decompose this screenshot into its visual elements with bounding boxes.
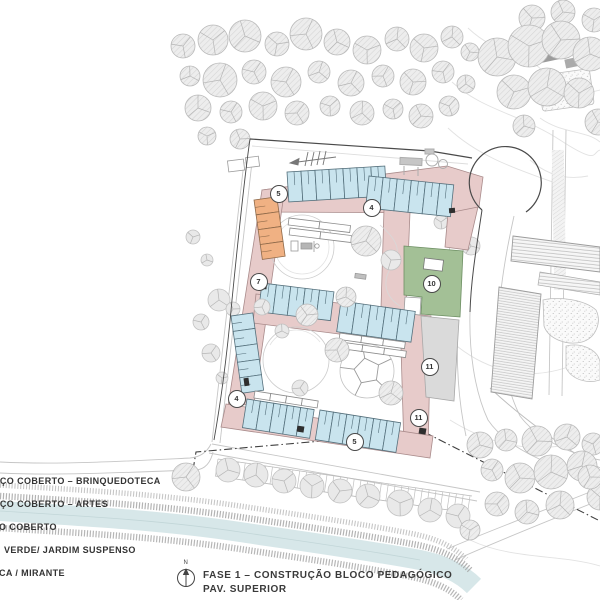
legend-item: VERDE/ JARDIM SUSPENSO bbox=[4, 545, 161, 568]
title-block: FASE 1 – CONSTRUÇÃO BLOCO PEDAGÓGICO PAV… bbox=[203, 570, 452, 595]
bench-icon bbox=[355, 273, 367, 279]
plan-marker: 4 bbox=[363, 199, 381, 217]
legend: AÇO COBERTO – BRINQUEDOTECA AÇO COBERTO … bbox=[0, 476, 161, 591]
legend-item: O COBERTO bbox=[0, 522, 161, 545]
plan-marker: 4 bbox=[228, 390, 246, 408]
plan-marker: 11 bbox=[410, 409, 428, 427]
survey-arrow-icon bbox=[290, 151, 336, 166]
plan-marker: 7 bbox=[250, 273, 268, 291]
skylight bbox=[423, 258, 443, 271]
plan-marker: 5 bbox=[270, 185, 288, 203]
play-equipment-icon bbox=[291, 241, 319, 252]
exterior-steps bbox=[227, 156, 259, 172]
legend-item: AÇO COBERTO – ARTES bbox=[0, 499, 161, 522]
plan-marker: 11 bbox=[421, 358, 439, 376]
north-arrow-icon bbox=[178, 568, 195, 587]
north-label: N bbox=[184, 560, 188, 566]
drawing-subtitle: PAV. SUPERIOR bbox=[203, 584, 452, 595]
plan-marker: 5 bbox=[346, 433, 364, 451]
legend-item: AÇO COBERTO – BRINQUEDOTECA bbox=[0, 476, 161, 499]
legend-item: CA / MIRANTE bbox=[0, 568, 161, 591]
drawing-title: FASE 1 – CONSTRUÇÃO BLOCO PEDAGÓGICO bbox=[203, 570, 452, 581]
site-plan-page: AÇO COBERTO – BRINQUEDOTECA AÇO COBERTO … bbox=[0, 0, 600, 600]
plan-marker: 10 bbox=[423, 275, 441, 293]
